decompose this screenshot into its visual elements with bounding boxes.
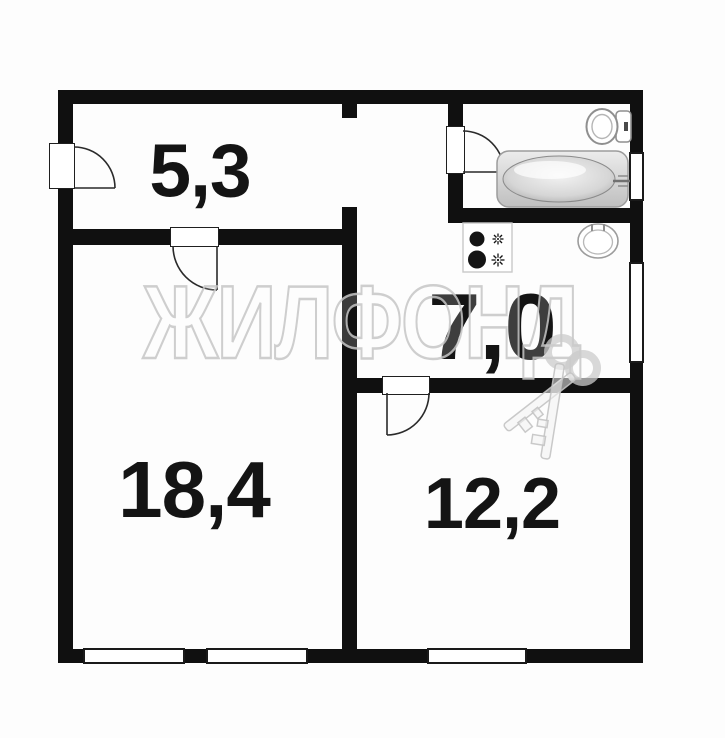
floor-plan: 5,3 7,0 18,4 12,2 ЖИЛФОНД (0, 0, 725, 738)
keys-watermark-icon (0, 0, 725, 738)
